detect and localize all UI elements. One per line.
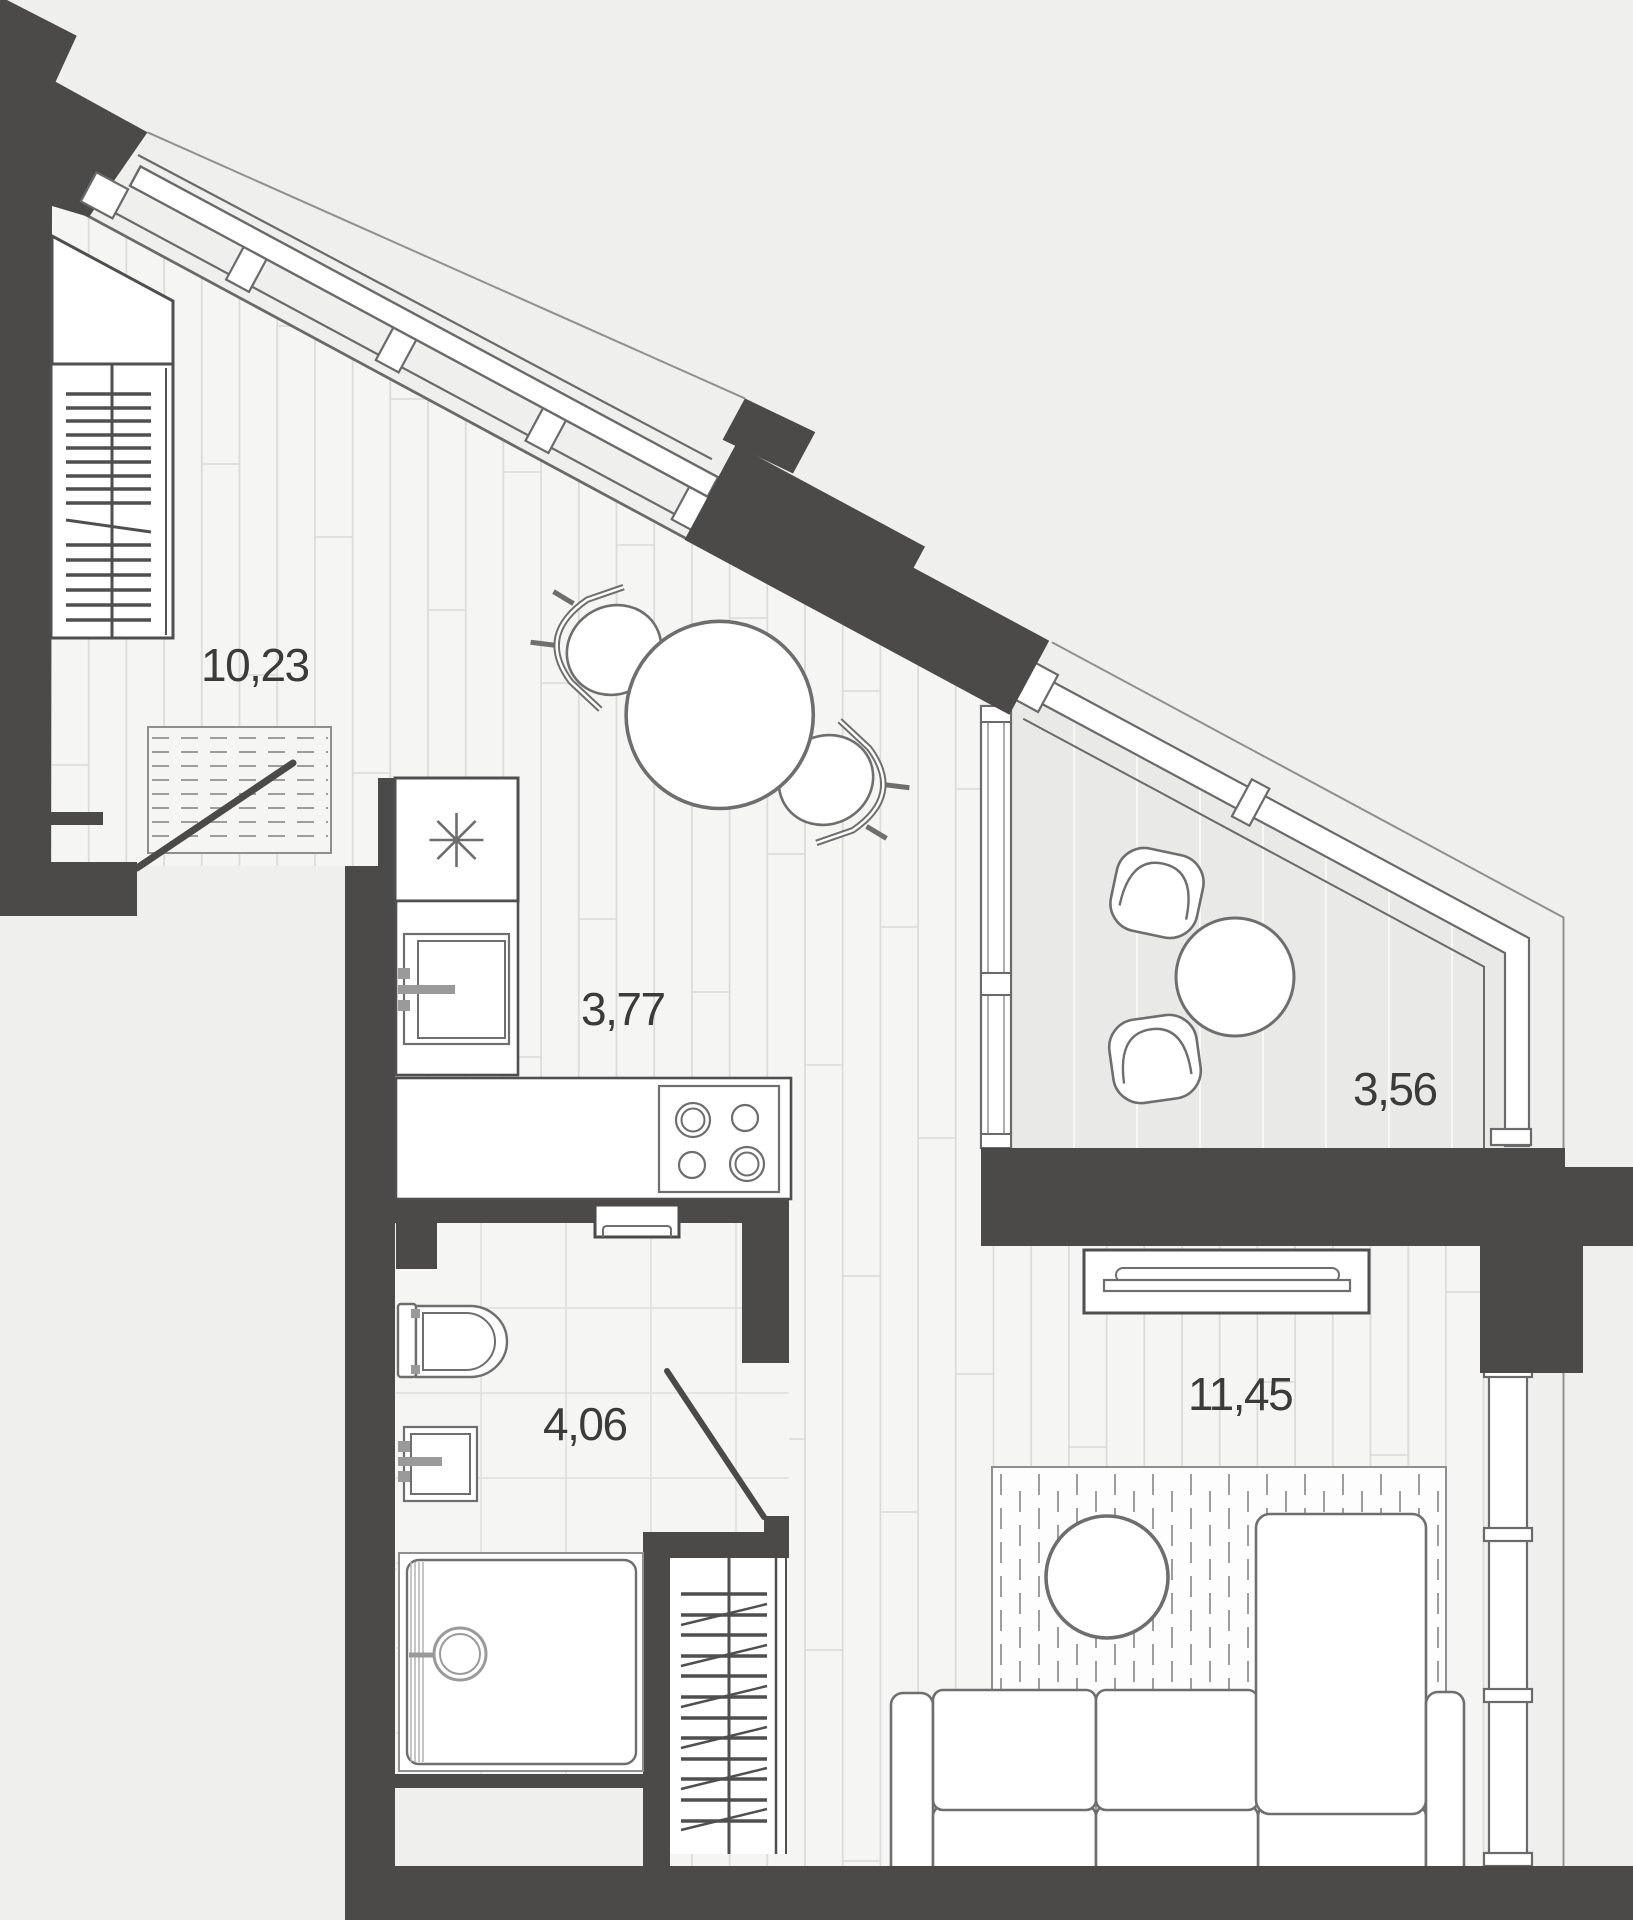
svg-text:3,77: 3,77 <box>581 983 665 1035</box>
svg-text:11,45: 11,45 <box>1188 1368 1292 1420</box>
svg-text:3,56: 3,56 <box>1353 1063 1437 1115</box>
svg-text:10,23: 10,23 <box>201 639 309 691</box>
svg-text:4,06: 4,06 <box>543 1398 627 1450</box>
